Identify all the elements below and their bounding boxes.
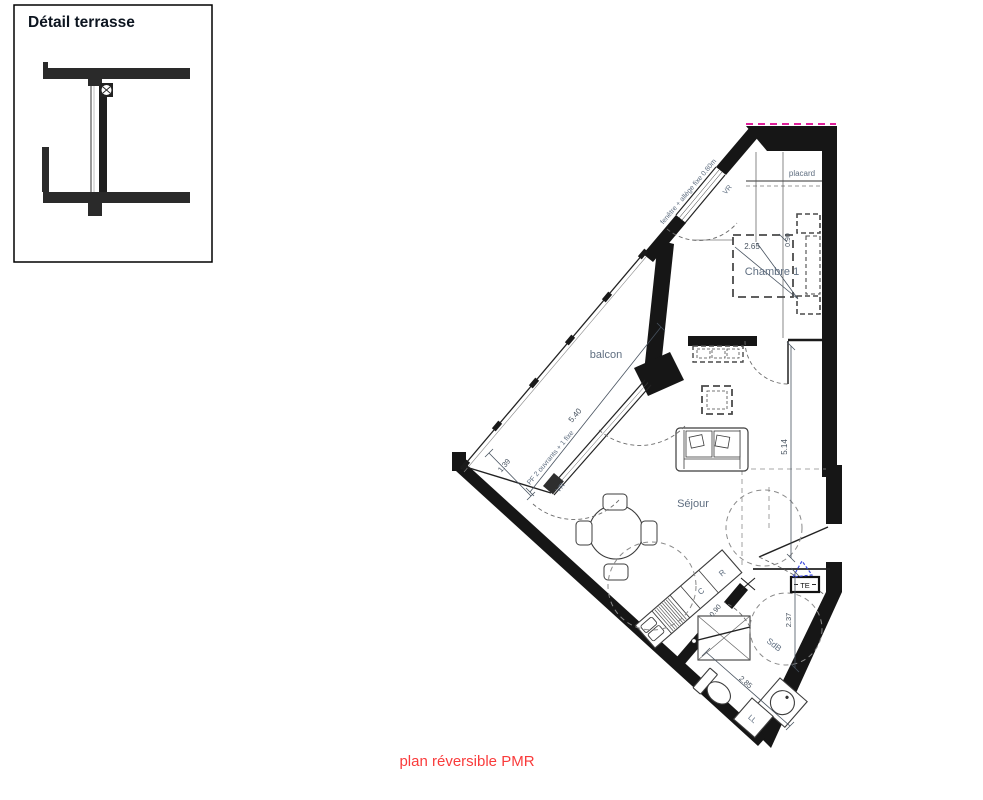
dim-window-length: 5.40 (567, 406, 584, 424)
annotation-window-upper: fenêtre + allège fixe 0.80m (660, 158, 719, 226)
sideboard (693, 346, 743, 362)
page: { "inset": { "title": "Détail terrasse" … (0, 0, 983, 800)
electrical-panel-label: TE (800, 581, 810, 590)
dim-bathroom-width: 2.85 (737, 674, 754, 690)
wall-right-mid (826, 472, 842, 524)
bathroom-door-pivot (692, 639, 697, 644)
upper-slab-stub (88, 79, 102, 86)
dining-chair (576, 521, 592, 545)
sofa-pillow (715, 435, 730, 448)
door-cross-mark (741, 578, 755, 590)
dining-table (589, 505, 643, 559)
side-table-inner (707, 391, 727, 409)
floor-plan-canvas: C R LL (0, 0, 983, 800)
nightstand-top (797, 214, 820, 233)
dim-bedroom-side: 0.90 (785, 233, 792, 247)
room-label-bedroom: Chambre 1 (745, 266, 799, 278)
side-table (702, 386, 732, 414)
dining-chair (604, 564, 628, 580)
wall-right-lower (826, 562, 842, 592)
lower-slab (43, 192, 190, 203)
wall-right-upper (822, 126, 837, 472)
sideboard-drawer (697, 349, 710, 358)
dim-balcony-depth: 1.39 (496, 457, 512, 474)
room-label-bathroom: SdB (765, 636, 784, 654)
wall-southeast (757, 592, 842, 748)
upper-slab (43, 68, 190, 79)
annotation-shutter-upper: VR (722, 184, 734, 196)
dim-bathroom-length: 2.37 (784, 613, 793, 628)
exterior-walls (452, 126, 842, 748)
nightstand-bottom (797, 296, 820, 314)
balcony-window-band (543, 380, 651, 495)
wall-window-pier (634, 352, 684, 396)
lower-slab-upstand (42, 147, 49, 192)
wall-facade-upper (716, 127, 760, 175)
window-sash-swing-1 (599, 425, 686, 445)
interior-lines (692, 152, 830, 590)
dining-set (576, 494, 657, 580)
sideboard-drawer (727, 349, 739, 358)
plan-caption: plan réversible PMR (399, 753, 534, 770)
dining-chair (641, 521, 657, 545)
dim-bedroom-width: 2.65 (744, 242, 760, 251)
detail-inset-frame (14, 5, 212, 262)
bedroom-furniture (733, 214, 820, 314)
bedroom-door-swing (745, 341, 788, 384)
sofa (676, 428, 748, 471)
detail-inset-title: Détail terrasse (28, 14, 135, 31)
room-label-closet: placard (789, 169, 815, 178)
room-label-living: Séjour (677, 498, 709, 510)
wall-bedroom-south (688, 336, 757, 346)
dim-living-length: 5.14 (780, 439, 789, 455)
wardrobe (806, 236, 820, 294)
lower-slab-stub (88, 203, 102, 216)
detail-inset: Détail terrasse (14, 5, 212, 262)
dining-chair (603, 494, 627, 510)
room-label-balcony: balcon (590, 349, 622, 361)
sideboard-drawer (712, 349, 725, 358)
entrance-door-leaf (759, 527, 828, 557)
railing-post-section (99, 84, 107, 192)
sofa-pillow (689, 435, 704, 448)
